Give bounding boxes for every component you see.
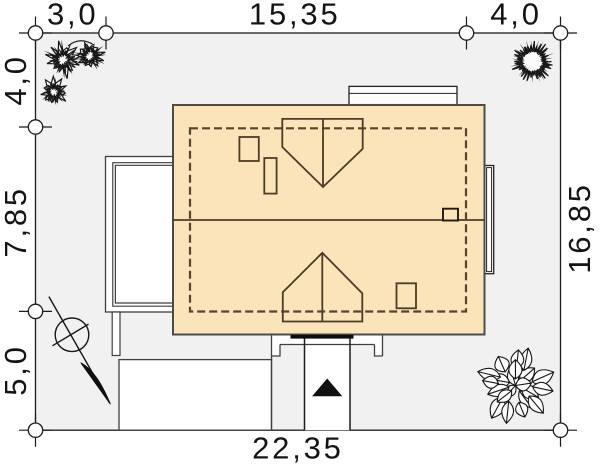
svg-text:4,0: 4,0 [0, 54, 33, 106]
svg-text:15,35: 15,35 [249, 0, 341, 31]
svg-text:4,0: 4,0 [490, 0, 542, 31]
svg-text:16,85: 16,85 [562, 182, 597, 274]
svg-text:5,0: 5,0 [0, 344, 33, 396]
svg-text:7,85: 7,85 [0, 186, 33, 258]
svg-text:22,35: 22,35 [252, 431, 344, 466]
svg-text:3,0: 3,0 [47, 0, 99, 31]
